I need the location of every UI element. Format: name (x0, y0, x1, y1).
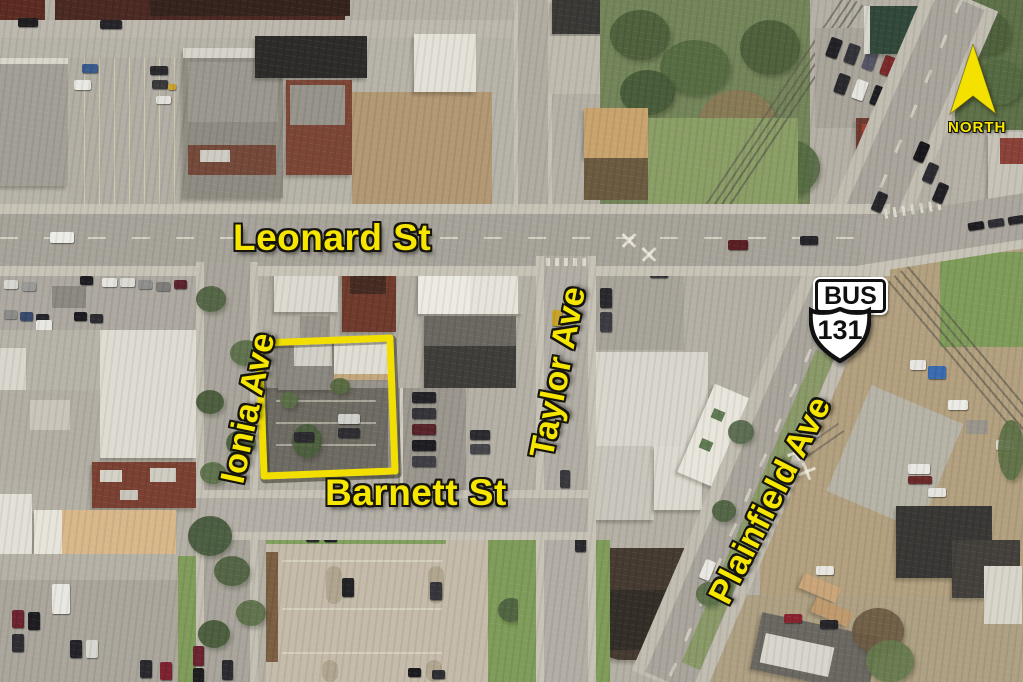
building (864, 6, 870, 54)
building (424, 346, 516, 388)
tree (196, 390, 224, 414)
car (932, 182, 950, 205)
tree (236, 600, 266, 626)
parking-line (282, 608, 442, 610)
car (152, 80, 168, 89)
aerial-map-view: Leonard St Ionia Ave Taylor Ave Barnett … (0, 0, 1023, 682)
tree (198, 620, 230, 648)
car (86, 640, 98, 658)
north-arrow-icon (946, 44, 1000, 118)
tree (998, 420, 1023, 480)
car (193, 646, 204, 666)
car (52, 584, 70, 614)
building (1000, 138, 1023, 164)
building (414, 34, 476, 92)
tree (728, 420, 754, 444)
car (728, 240, 748, 250)
tree (866, 640, 914, 682)
car (948, 400, 968, 410)
building (590, 352, 708, 446)
car (160, 662, 172, 680)
building (424, 316, 516, 346)
car (150, 66, 168, 75)
sidewalk (514, 0, 518, 212)
car (138, 280, 152, 289)
car (784, 614, 802, 623)
grass-area (596, 540, 610, 682)
building (0, 64, 68, 186)
crosswalk-marking (546, 258, 586, 266)
car (600, 288, 612, 308)
road-leonard (0, 214, 890, 266)
tree (214, 556, 250, 586)
building (255, 36, 367, 78)
car (408, 668, 421, 677)
sidewalk (0, 266, 890, 276)
car (816, 566, 834, 575)
car (12, 610, 24, 628)
shed (966, 420, 988, 434)
tree (712, 500, 736, 522)
sidewalk (0, 204, 890, 214)
building (584, 108, 648, 158)
building (984, 566, 1022, 624)
sidewalk (196, 532, 588, 540)
building (100, 470, 122, 482)
tree (610, 10, 670, 60)
car (910, 360, 926, 370)
car (22, 282, 36, 291)
parking-lot (266, 532, 488, 682)
car (412, 408, 436, 419)
building (92, 462, 196, 508)
mulch-strip (266, 552, 278, 662)
street-label-barnett: Barnett St (325, 474, 507, 511)
car (908, 464, 930, 474)
car (4, 310, 17, 319)
car (908, 476, 932, 484)
car (12, 634, 24, 652)
tree (196, 286, 226, 312)
building (100, 330, 196, 458)
car (470, 444, 490, 454)
building (150, 468, 176, 482)
tree (188, 516, 232, 556)
car (102, 278, 117, 287)
car (50, 232, 74, 243)
north-label: NORTH (948, 120, 1006, 135)
asphalt-patch (52, 286, 86, 308)
car (193, 668, 204, 682)
car (174, 280, 187, 289)
car (928, 488, 946, 497)
car (140, 660, 152, 678)
railroad-crossing-marking (641, 246, 657, 262)
lane-marking (0, 237, 890, 239)
parking-line (282, 560, 442, 562)
car (82, 64, 98, 73)
car (100, 20, 122, 29)
car (28, 612, 40, 630)
car (20, 312, 33, 321)
car (412, 392, 436, 403)
car (80, 276, 93, 285)
car (430, 582, 442, 600)
dirt-area (352, 92, 492, 207)
car (820, 620, 838, 629)
car (74, 312, 87, 321)
grass-area (518, 530, 536, 682)
sidewalk (588, 256, 596, 682)
car (74, 80, 91, 90)
railroad-crossing-marking (621, 232, 637, 248)
building (592, 446, 654, 520)
car (432, 670, 445, 679)
car (412, 424, 436, 435)
parking-line (282, 652, 442, 654)
sidewalk (536, 256, 544, 682)
car (90, 314, 103, 323)
car (168, 84, 176, 90)
building (200, 150, 230, 162)
driveway (0, 554, 196, 580)
building (290, 85, 345, 125)
car (4, 280, 18, 289)
parking-island (322, 660, 338, 682)
car (156, 96, 171, 104)
car (560, 470, 570, 488)
road (518, 0, 548, 212)
route-shield-number: 131 (809, 317, 871, 344)
car (18, 18, 38, 27)
car (412, 440, 436, 451)
car (120, 278, 135, 287)
building (30, 400, 70, 430)
car (70, 640, 82, 658)
car (600, 312, 612, 332)
car (470, 430, 490, 440)
car (222, 660, 233, 680)
parking-island (326, 566, 342, 604)
building (150, 0, 350, 16)
car (928, 366, 946, 379)
building (300, 316, 330, 338)
car (156, 282, 170, 291)
building (584, 158, 648, 200)
car (412, 456, 436, 467)
car (800, 236, 818, 245)
street-label-leonard: Leonard St (233, 219, 431, 256)
building (120, 490, 138, 500)
tree (740, 20, 800, 75)
car (342, 578, 354, 597)
building (34, 510, 62, 554)
